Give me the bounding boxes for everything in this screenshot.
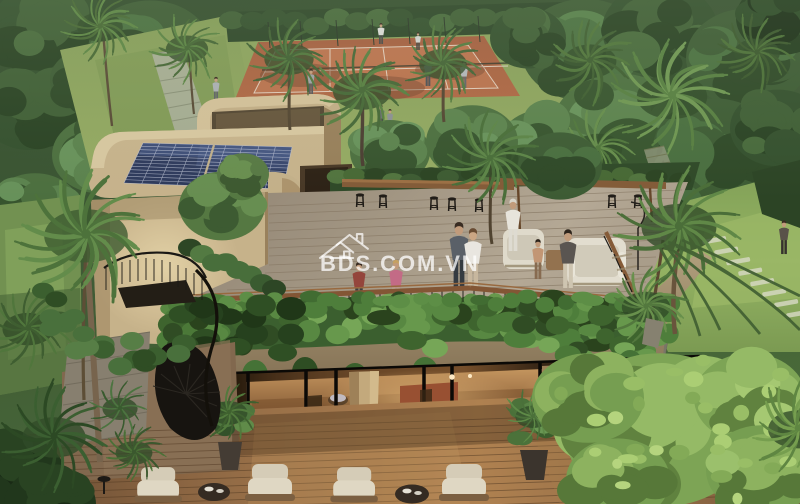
svg-text:BDS.COM.VN: BDS.COM.VN <box>320 251 480 276</box>
